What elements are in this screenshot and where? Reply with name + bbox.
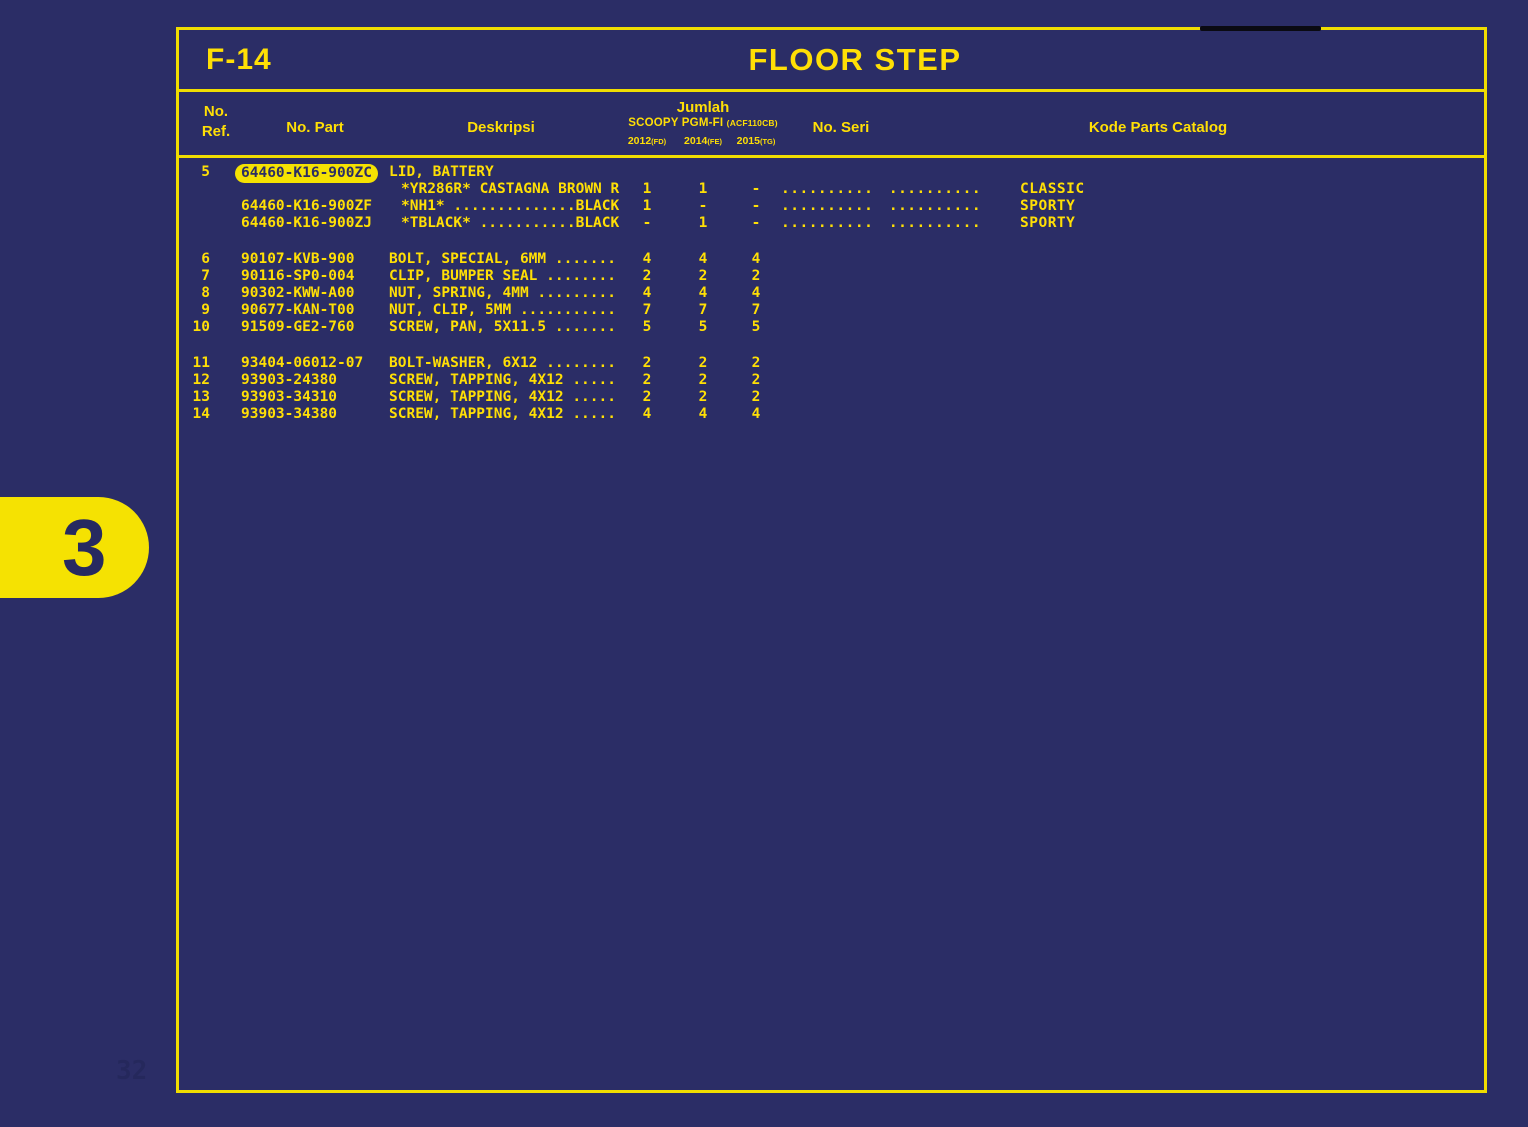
column-header-kode: Kode Parts Catalog <box>1089 119 1227 136</box>
qty-2014-cell: 2 <box>675 389 731 406</box>
seri-cell: .......... <box>861 198 1009 215</box>
seri-cell <box>861 389 1009 406</box>
seri-cell <box>781 406 861 423</box>
part-number-cell: 90107-KVB-900 <box>234 251 387 268</box>
seri-cell: .......... <box>781 181 861 198</box>
ref-cell: 12 <box>179 372 234 389</box>
model-code: (ACF110CB) <box>727 118 778 128</box>
description-cell: *YR286R* CASTAGNA BROWN R <box>387 181 619 198</box>
kode-parts-catalog-cell <box>1009 268 1484 285</box>
table-row: 790116-SP0-004CLIP, BUMPER SEAL ........… <box>179 268 1484 285</box>
description-cell: NUT, SPRING, 4MM ......... <box>387 285 619 302</box>
seri-cell <box>781 319 861 336</box>
qty-2015-cell: - <box>731 198 781 215</box>
qty-2014-cell: 2 <box>675 372 731 389</box>
section-tab[interactable]: 3 <box>0 497 149 598</box>
qty-2014-cell: 4 <box>675 251 731 268</box>
kode-parts-catalog-cell <box>1009 389 1484 406</box>
column-header-model: SCOOPY PGM-FI (ACF110CB) <box>628 117 778 129</box>
qty-2015-cell: 5 <box>731 319 781 336</box>
description-cell: BOLT-WASHER, 6X12 ........ <box>387 355 619 372</box>
part-number-cell: 90677-KAN-T00 <box>234 302 387 319</box>
qty-2014-cell: 5 <box>675 319 731 336</box>
seri-cell: .......... <box>861 215 1009 232</box>
table-row: 890302-KWW-A00NUT, SPRING, 4MM .........… <box>179 285 1484 302</box>
qty-2014-cell: 1 <box>675 181 731 198</box>
kode-parts-catalog-cell <box>1009 406 1484 423</box>
row-group: 564460-K16-900ZCLID, BATTERY*YR286R* CAS… <box>179 164 1484 232</box>
table-row: 1293903-24380SCREW, TAPPING, 4X12 .....2… <box>179 372 1484 389</box>
qty-2014-cell: 4 <box>675 285 731 302</box>
table-row: 64460-K16-900ZF*NH1* ..............BLACK… <box>179 198 1484 215</box>
part-number-cell: 93404-06012-07 <box>234 355 387 372</box>
description-cell: SCREW, TAPPING, 4X12 ..... <box>387 406 619 423</box>
qty-2015-cell: 4 <box>731 285 781 302</box>
kode-parts-catalog-cell: SPORTY <box>1009 198 1484 215</box>
description-cell: NUT, CLIP, 5MM ........... <box>387 302 619 319</box>
qty-2012-cell: 7 <box>619 302 675 319</box>
qty-2012-cell: 4 <box>619 285 675 302</box>
description-cell: SCREW, TAPPING, 4X12 ..... <box>387 372 619 389</box>
ref-cell: 13 <box>179 389 234 406</box>
qty-2014-cell: 4 <box>675 406 731 423</box>
part-number-cell: 91509-GE2-760 <box>234 319 387 336</box>
table-row: 1091509-GE2-760SCREW, PAN, 5X11.5 ......… <box>179 319 1484 336</box>
part-number-cell <box>234 181 387 198</box>
ref-cell <box>179 215 234 232</box>
seri-cell <box>781 355 861 372</box>
ref-cell: 8 <box>179 285 234 302</box>
year-code: (FE) <box>707 137 722 146</box>
part-number-cell: 90302-KWW-A00 <box>234 285 387 302</box>
qty-2012-cell: 4 <box>619 406 675 423</box>
part-number-cell: 90116-SP0-004 <box>234 268 387 285</box>
column-header-deskripsi: Deskripsi <box>467 119 535 136</box>
qty-2015-cell: 2 <box>731 268 781 285</box>
column-header-seri: No. Seri <box>813 119 870 136</box>
part-number-cell: 64460-K16-900ZF <box>234 198 387 215</box>
seri-cell <box>861 319 1009 336</box>
qty-2012-cell: 1 <box>619 198 675 215</box>
seri-cell <box>781 302 861 319</box>
ref-cell: 14 <box>179 406 234 423</box>
table-row: 64460-K16-900ZJ*TBLACK* ...........BLACK… <box>179 215 1484 232</box>
year-column-2012: 2012(FD) <box>619 135 675 147</box>
description-cell: CLIP, BUMPER SEAL ........ <box>387 268 619 285</box>
year-code: (FD) <box>651 137 666 146</box>
row-group: 1193404-06012-07BOLT-WASHER, 6X12 ......… <box>179 355 1484 423</box>
ref-cell: 11 <box>179 355 234 372</box>
description-cell: BOLT, SPECIAL, 6MM ....... <box>387 251 619 268</box>
description-cell: *NH1* ..............BLACK <box>387 198 619 215</box>
kode-parts-catalog-cell <box>1009 319 1484 336</box>
qty-2015-cell: 7 <box>731 302 781 319</box>
seri-cell <box>781 372 861 389</box>
kode-parts-catalog-cell <box>1009 285 1484 302</box>
column-header-ref: No. Ref. <box>202 102 230 142</box>
table-row: 690107-KVB-900BOLT, SPECIAL, 6MM .......… <box>179 251 1484 268</box>
table-row: 1193404-06012-07BOLT-WASHER, 6X12 ......… <box>179 355 1484 372</box>
description-cell: SCREW, PAN, 5X11.5 ....... <box>387 319 619 336</box>
qty-2015-cell: - <box>731 215 781 232</box>
year-label: 2012 <box>628 135 651 147</box>
seri-cell <box>861 251 1009 268</box>
seri-cell <box>861 406 1009 423</box>
table-row: *YR286R* CASTAGNA BROWN R11-............… <box>179 181 1484 198</box>
ref-cell <box>179 181 234 198</box>
column-header-ref-line2: Ref. <box>202 122 230 142</box>
qty-2012-cell: 1 <box>619 181 675 198</box>
table-row: 1393903-34310SCREW, TAPPING, 4X12 .....2… <box>179 389 1484 406</box>
page-background: 32 3 F-14 FLOOR STEP No. Ref. No. Part D… <box>0 0 1528 1127</box>
qty-2015-cell: 2 <box>731 355 781 372</box>
qty-2014-cell: 1 <box>675 215 731 232</box>
column-header-years: 2012(FD) 2014(FE) 2015(TG) <box>619 135 781 147</box>
qty-2015-cell: 4 <box>731 406 781 423</box>
table-header: No. Ref. No. Part Deskripsi Jumlah SCOOP… <box>179 92 1484 158</box>
column-header-jumlah: Jumlah <box>677 99 730 116</box>
year-label: 2015 <box>737 135 760 147</box>
qty-2012-cell: 4 <box>619 251 675 268</box>
seri-cell: .......... <box>781 215 861 232</box>
column-header-ref-line1: No. <box>202 102 230 122</box>
description-cell: *TBLACK* ...........BLACK <box>387 215 619 232</box>
kode-parts-catalog-cell <box>1009 302 1484 319</box>
qty-2015-cell: 2 <box>731 389 781 406</box>
page-title: FLOOR STEP <box>748 42 961 78</box>
catalog-page-frame: F-14 FLOOR STEP No. Ref. No. Part Deskri… <box>176 27 1487 1093</box>
qty-2014-cell: 2 <box>675 355 731 372</box>
year-column-2014: 2014(FE) <box>675 135 731 147</box>
scan-artifact-mark <box>1200 26 1321 31</box>
qty-2015-cell: - <box>731 181 781 198</box>
ref-cell: 9 <box>179 302 234 319</box>
seri-cell: .......... <box>781 198 861 215</box>
qty-2015-cell: 4 <box>731 251 781 268</box>
model-name: SCOOPY PGM-FI <box>628 117 723 129</box>
title-band: F-14 FLOOR STEP <box>179 30 1484 92</box>
seri-cell <box>861 355 1009 372</box>
qty-2012-cell: 2 <box>619 389 675 406</box>
table-row: 564460-K16-900ZCLID, BATTERY <box>179 164 1484 181</box>
qty-2015-cell: 2 <box>731 372 781 389</box>
year-code: (TG) <box>760 137 775 146</box>
qty-2012-cell: - <box>619 215 675 232</box>
qty-2014-cell: 2 <box>675 268 731 285</box>
qty-2012-cell: 2 <box>619 268 675 285</box>
ref-cell <box>179 198 234 215</box>
seri-cell <box>861 302 1009 319</box>
qty-2012-cell: 5 <box>619 319 675 336</box>
year-column-2015: 2015(TG) <box>731 135 781 147</box>
ref-cell: 10 <box>179 319 234 336</box>
seri-cell <box>781 389 861 406</box>
qty-2012-cell: 2 <box>619 355 675 372</box>
page-code: F-14 <box>206 43 272 77</box>
part-number-cell: 64460-K16-900ZJ <box>234 215 387 232</box>
kode-parts-catalog-cell: CLASSIC <box>1009 181 1484 198</box>
kode-parts-catalog-cell <box>1009 355 1484 372</box>
column-header-part: No. Part <box>286 119 344 136</box>
description-cell: SCREW, TAPPING, 4X12 ..... <box>387 389 619 406</box>
seri-cell <box>861 285 1009 302</box>
kode-parts-catalog-cell: SPORTY <box>1009 215 1484 232</box>
page-number-watermark: 32 <box>116 1056 147 1086</box>
seri-cell <box>781 268 861 285</box>
qty-2014-cell: 7 <box>675 302 731 319</box>
ref-cell: 7 <box>179 268 234 285</box>
qty-2012-cell: 2 <box>619 372 675 389</box>
row-group: 690107-KVB-900BOLT, SPECIAL, 6MM .......… <box>179 251 1484 336</box>
kode-parts-catalog-cell <box>1009 251 1484 268</box>
parts-table-body: 564460-K16-900ZCLID, BATTERY*YR286R* CAS… <box>179 158 1484 423</box>
part-number-cell: 93903-24380 <box>234 372 387 389</box>
table-row: 1493903-34380SCREW, TAPPING, 4X12 .....4… <box>179 406 1484 423</box>
ref-cell: 6 <box>179 251 234 268</box>
seri-cell <box>861 268 1009 285</box>
part-number-cell: 93903-34380 <box>234 406 387 423</box>
kode-parts-catalog-cell <box>1009 372 1484 389</box>
seri-cell <box>781 251 861 268</box>
part-number-cell: 93903-34310 <box>234 389 387 406</box>
table-row: 990677-KAN-T00NUT, CLIP, 5MM ...........… <box>179 302 1484 319</box>
seri-cell <box>861 372 1009 389</box>
seri-cell: .......... <box>861 181 1009 198</box>
year-label: 2014 <box>684 135 707 147</box>
qty-2014-cell: - <box>675 198 731 215</box>
section-tab-number: 3 <box>0 508 107 588</box>
seri-cell <box>781 285 861 302</box>
